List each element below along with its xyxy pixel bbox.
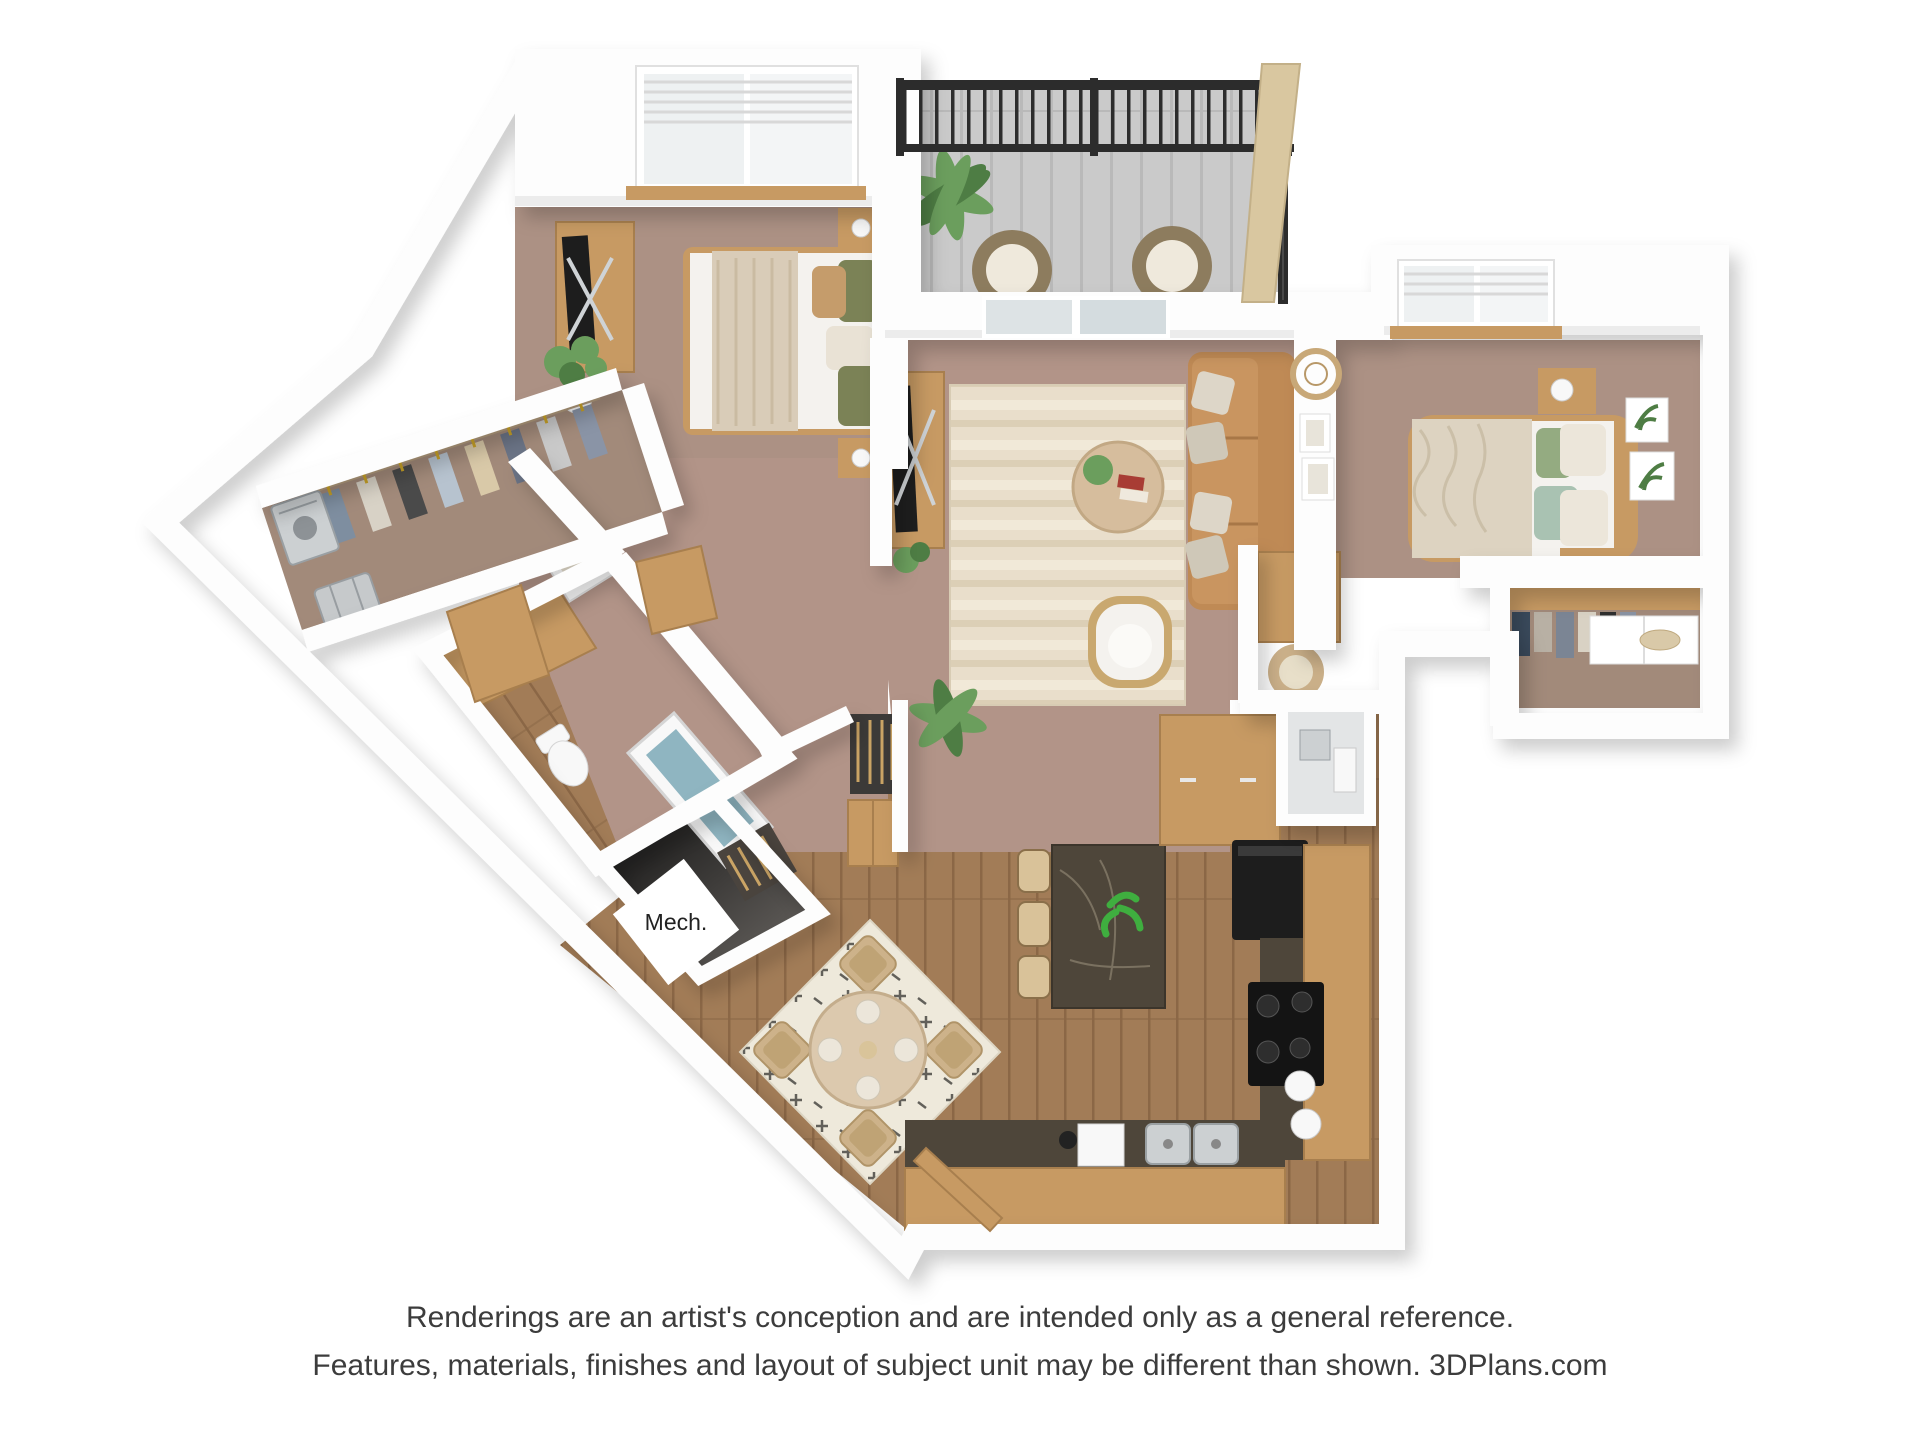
hall-door: [636, 546, 717, 634]
bedroom1-window: [626, 66, 866, 200]
upper-cabinet-run: [1160, 715, 1280, 845]
cup: [1551, 379, 1573, 401]
botanical-art-print: [1630, 452, 1674, 500]
coffee-table: [1073, 442, 1163, 532]
kitchen-island: [1052, 845, 1165, 1008]
accent-armchair: [1088, 596, 1172, 688]
pillow-white-mid: [826, 326, 874, 370]
waste-bin: [1291, 1109, 1321, 1139]
floorplan-rendering: Mech.: [0, 0, 1920, 1440]
desk-nook-wall: [1238, 545, 1258, 703]
waste-bin: [1285, 1071, 1315, 1101]
bedroom2-closet-left-wall: [1490, 580, 1510, 726]
pillow-tan-top: [812, 266, 846, 318]
living-left-wall: [870, 338, 892, 566]
botanical-art-print: [1626, 398, 1668, 442]
small-appliance: [1300, 730, 1330, 760]
sofa-pillow: [1189, 491, 1233, 535]
bar-stool: [1018, 956, 1050, 998]
bar-stool: [1018, 850, 1050, 892]
mech-label-text: Mech.: [645, 909, 708, 935]
bar-stool: [1018, 902, 1050, 946]
hall-kitchen-wall: [892, 700, 908, 852]
disclaimer-line2: Features, materials, finishes and layout…: [0, 1342, 1920, 1390]
kitchen-alcove: [1276, 700, 1376, 826]
lamp: [852, 219, 870, 237]
table-plant: [1083, 455, 1113, 485]
pillow-white: [1560, 424, 1606, 476]
sofa-pillow: [1185, 421, 1229, 465]
floorplan-page: Mech. Renderings are an artist's concept…: [0, 0, 1920, 1440]
railing-post: [1090, 78, 1098, 156]
window-sill: [626, 186, 866, 200]
sliding-glass-door: [984, 298, 1168, 336]
coffee-maker: [1059, 1131, 1077, 1149]
dishwasher: [1078, 1124, 1124, 1166]
railing-post: [896, 78, 904, 156]
disclaimer: Renderings are an artist's conception an…: [0, 1294, 1920, 1390]
small-appliance: [1334, 748, 1356, 792]
window-sill: [1390, 326, 1562, 339]
disclaimer-line1: Renderings are an artist's conception an…: [0, 1294, 1920, 1342]
bedroom2-window: [1390, 260, 1562, 339]
lamp: [852, 449, 870, 467]
basket: [1640, 630, 1680, 650]
pillow-white: [1560, 490, 1608, 546]
stove: [1248, 982, 1324, 1086]
bed-comforter: [1412, 419, 1532, 558]
